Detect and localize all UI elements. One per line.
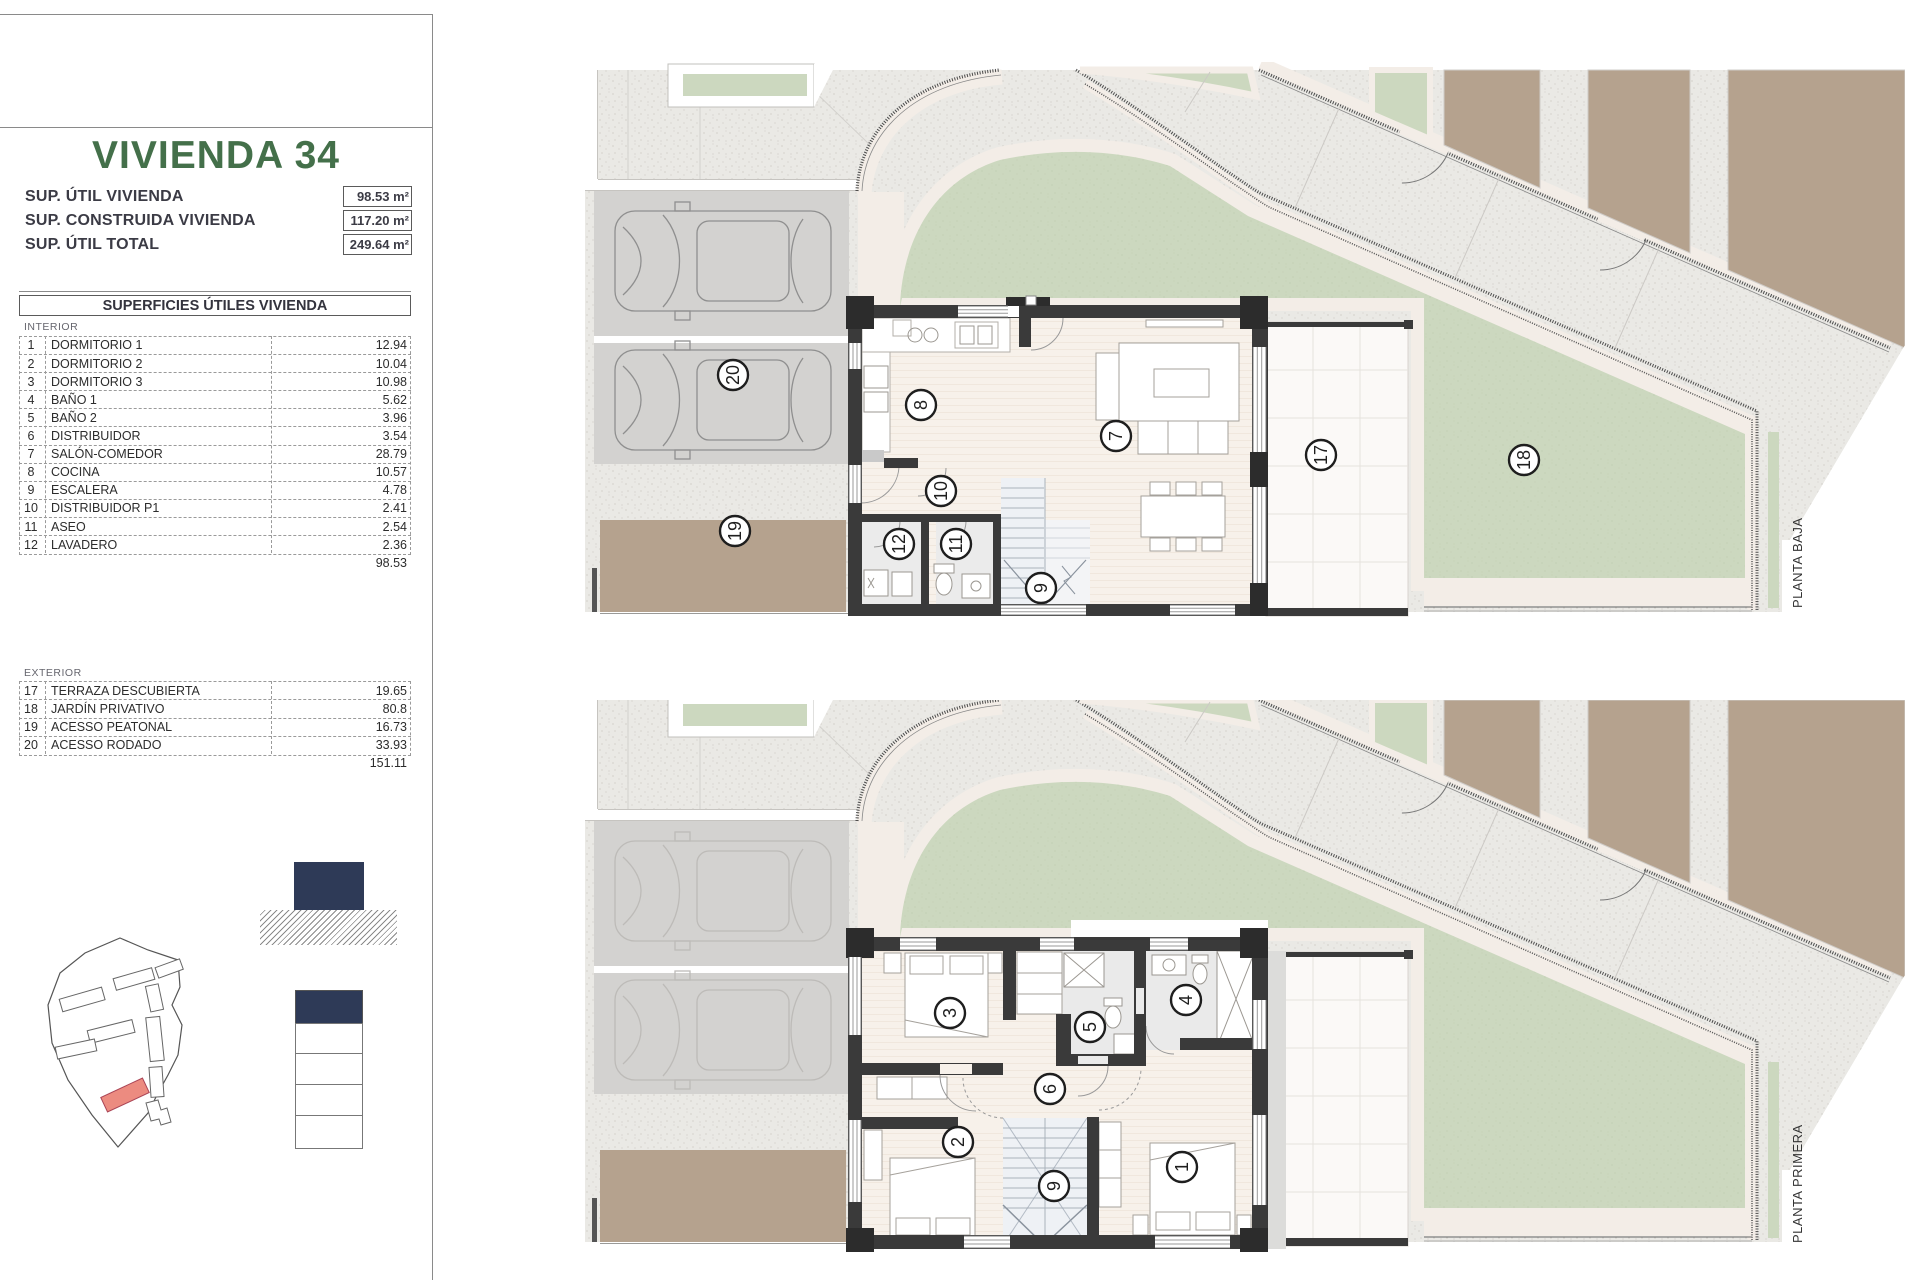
svg-text:8: 8 (911, 400, 931, 410)
svg-text:5: 5 (1080, 1022, 1100, 1032)
svg-text:9: 9 (1044, 1181, 1064, 1191)
svg-text:6: 6 (1040, 1084, 1060, 1094)
svg-text:20: 20 (723, 365, 743, 385)
svg-text:9: 9 (1031, 583, 1051, 593)
svg-text:3: 3 (940, 1008, 960, 1018)
svg-text:10: 10 (931, 481, 951, 501)
svg-text:2: 2 (948, 1137, 968, 1147)
svg-text:PLANTA PRIMERA: PLANTA PRIMERA (1790, 1124, 1805, 1243)
svg-text:17: 17 (1311, 445, 1331, 465)
svg-text:11: 11 (946, 535, 966, 554)
svg-text:19: 19 (725, 521, 745, 541)
svg-text:7: 7 (1106, 431, 1126, 441)
svg-text:PLANTA BAJA: PLANTA BAJA (1790, 517, 1805, 608)
svg-text:1: 1 (1172, 1162, 1192, 1172)
svg-text:12: 12 (889, 534, 909, 554)
svg-text:18: 18 (1514, 450, 1534, 470)
svg-text:4: 4 (1176, 995, 1196, 1005)
